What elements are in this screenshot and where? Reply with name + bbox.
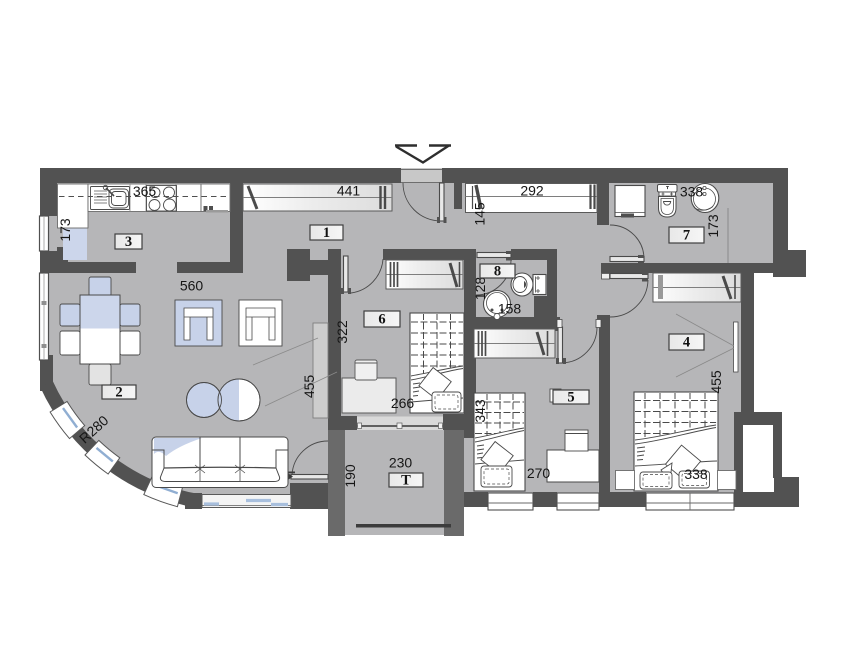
- svg-text:560: 560: [180, 278, 204, 294]
- svg-text:338: 338: [680, 184, 704, 200]
- svg-text:266: 266: [391, 395, 415, 411]
- svg-text:3: 3: [125, 234, 132, 250]
- svg-text:292: 292: [520, 183, 544, 199]
- svg-text:338: 338: [684, 466, 708, 482]
- svg-text:128: 128: [472, 277, 488, 301]
- svg-text:173: 173: [705, 214, 721, 238]
- svg-text:158: 158: [498, 301, 522, 317]
- svg-text:1: 1: [323, 225, 330, 241]
- svg-text:4: 4: [683, 335, 690, 351]
- svg-text:230: 230: [389, 455, 413, 471]
- svg-text:6: 6: [378, 312, 385, 328]
- svg-text:8: 8: [494, 264, 501, 280]
- svg-text:365: 365: [133, 183, 157, 199]
- svg-text:190: 190: [342, 464, 358, 488]
- svg-text:T: T: [401, 473, 411, 489]
- svg-text:455: 455: [301, 375, 317, 399]
- svg-text:455: 455: [708, 370, 724, 394]
- svg-text:322: 322: [334, 320, 350, 344]
- svg-text:441: 441: [337, 183, 361, 199]
- svg-text:173: 173: [57, 218, 73, 242]
- svg-text:145: 145: [472, 202, 488, 226]
- svg-text:7: 7: [683, 228, 690, 244]
- svg-text:270: 270: [527, 465, 551, 481]
- svg-text:5: 5: [567, 390, 574, 406]
- svg-text:2: 2: [115, 385, 122, 401]
- svg-text:343: 343: [472, 399, 488, 423]
